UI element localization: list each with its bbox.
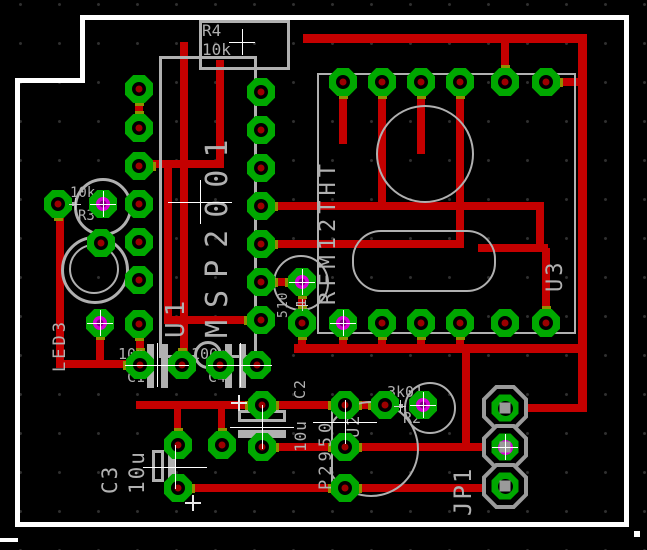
thru-hole-pad[interactable] <box>247 268 275 296</box>
silk-label: U3 <box>545 260 567 293</box>
thru-hole-pad[interactable] <box>247 306 275 334</box>
pad-drill <box>219 442 226 449</box>
pad-hole <box>539 75 553 89</box>
header-pad-ring <box>492 473 519 500</box>
pad-hole <box>336 75 350 89</box>
copper-trace[interactable] <box>578 34 587 412</box>
silk-label: C3 <box>100 465 121 494</box>
thru-hole-pad[interactable] <box>125 114 153 142</box>
pad-drill <box>136 125 143 132</box>
header-pad-hole <box>498 479 513 494</box>
board-outline-segment[interactable] <box>15 78 85 83</box>
thru-hole-pad[interactable] <box>491 68 519 96</box>
crosshair-v <box>302 269 303 295</box>
thru-hole-pad[interactable] <box>247 78 275 106</box>
thru-hole-pad[interactable] <box>164 474 192 502</box>
capacitor-plate <box>161 344 168 388</box>
copper-trace[interactable] <box>303 34 583 43</box>
pad-drill <box>418 320 425 327</box>
thru-hole-pad[interactable] <box>247 116 275 144</box>
copper-trace[interactable] <box>294 344 586 353</box>
crosshair-v <box>157 343 158 387</box>
silkscreen-stadium[interactable] <box>352 230 496 292</box>
pad-hole <box>375 316 389 330</box>
thru-hole-pad[interactable] <box>44 190 72 218</box>
pad-drill <box>379 320 386 327</box>
crosshair-v <box>400 400 401 412</box>
pad-hole <box>171 481 185 495</box>
pad-drill <box>55 201 62 208</box>
thru-hole-pad[interactable] <box>125 266 153 294</box>
pad-drill <box>258 203 265 210</box>
pad-drill <box>258 241 265 248</box>
pad-hole <box>94 236 108 250</box>
pad-drill <box>543 79 550 86</box>
pad-hole <box>453 316 467 330</box>
silk-label: LED3 <box>52 319 69 372</box>
pcb-canvas[interactable]: R410k10kR310nC1100nC43k01R2U1MSP2001RFM1… <box>0 0 647 550</box>
header-pad-ring <box>492 395 519 422</box>
plus-v <box>192 495 194 511</box>
thru-hole-pad[interactable] <box>247 154 275 182</box>
crosshair-v <box>345 400 346 444</box>
crosshair-v <box>505 434 506 460</box>
pad-drill <box>382 402 389 409</box>
silk-label: RFM12THT <box>318 159 340 305</box>
board-outline-segment[interactable] <box>624 15 629 527</box>
thru-hole-pad[interactable] <box>125 228 153 256</box>
board-outline-segment[interactable] <box>15 522 629 527</box>
thru-hole-pad[interactable] <box>532 68 560 96</box>
header-pad-pin <box>500 403 511 414</box>
crosshair-v <box>100 310 101 336</box>
header-pad[interactable] <box>482 463 528 509</box>
thru-hole-pad[interactable] <box>125 310 153 338</box>
silk-label: C2 <box>293 379 308 399</box>
crosshair-v <box>103 191 104 217</box>
pad-drill <box>136 239 143 246</box>
capacitor-plate-hollow <box>152 450 164 482</box>
pad-drill <box>340 79 347 86</box>
silk-label: 10u <box>127 450 148 494</box>
pad-hole <box>132 197 146 211</box>
pad-drill <box>543 320 550 327</box>
thru-hole-pad[interactable] <box>331 474 359 502</box>
silk-label: JP1 <box>451 467 475 516</box>
pad-drill <box>342 444 349 451</box>
board-outline-segment[interactable] <box>80 15 85 83</box>
silk-label: U1 <box>163 295 189 338</box>
pad-drill <box>136 277 143 284</box>
pad-hole <box>453 75 467 89</box>
pad-drill <box>502 79 509 86</box>
silk-label: MSP2001 <box>203 128 233 338</box>
pad-hole <box>132 82 146 96</box>
silk-label: 10k <box>202 42 231 58</box>
pad-drill <box>98 240 105 247</box>
thru-hole-pad[interactable] <box>125 190 153 218</box>
crosshair-v <box>75 198 76 210</box>
crosshair-v <box>240 343 241 387</box>
thru-hole-pad[interactable] <box>288 309 316 337</box>
pad-drill <box>136 86 143 93</box>
pad-hole <box>254 199 268 213</box>
thru-hole-pad[interactable] <box>407 309 435 337</box>
pad-drill <box>299 320 306 327</box>
pad-hole <box>378 398 392 412</box>
board-outline-segment[interactable] <box>15 78 20 527</box>
pad-drill <box>418 79 425 86</box>
pad-hole <box>498 75 512 89</box>
header-pad-body <box>486 467 524 505</box>
pad-drill <box>136 163 143 170</box>
thru-hole-pad[interactable] <box>125 75 153 103</box>
pad-hole <box>132 235 146 249</box>
thru-hole-pad[interactable] <box>164 431 192 459</box>
pad-hole <box>414 75 428 89</box>
crosshair-v <box>343 310 344 336</box>
crosshair-v <box>423 392 424 418</box>
pad-drill <box>502 320 509 327</box>
pad-hole <box>254 237 268 251</box>
crosshair-v <box>302 299 303 311</box>
thru-hole-pad[interactable] <box>329 68 357 96</box>
pad-drill <box>457 79 464 86</box>
pad-hole <box>539 316 553 330</box>
pad-hole <box>132 317 146 331</box>
pad-drill <box>258 127 265 134</box>
plus-v <box>238 395 240 411</box>
crosshair-v <box>200 180 201 224</box>
thru-hole-pad[interactable] <box>407 68 435 96</box>
thru-hole-pad[interactable] <box>368 309 396 337</box>
pad-hole <box>338 481 352 495</box>
pad-hole <box>295 316 309 330</box>
silk-label: 510 <box>277 292 290 318</box>
silk-label: P2950 <box>318 419 335 490</box>
header-pad-body <box>486 389 524 427</box>
pad-hole <box>171 438 185 452</box>
header-pad-pin <box>500 481 511 492</box>
thru-hole-pad[interactable] <box>87 229 115 257</box>
pad-drill <box>342 485 349 492</box>
pad-hole <box>414 316 428 330</box>
thru-hole-pad[interactable] <box>247 192 275 220</box>
thru-hole-pad[interactable] <box>125 152 153 180</box>
thru-hole-pad[interactable] <box>247 230 275 258</box>
pad-hole <box>132 159 146 173</box>
pad-drill <box>258 279 265 286</box>
pad-hole <box>254 85 268 99</box>
silk-label: R4 <box>202 23 221 39</box>
board-outline-segment[interactable] <box>634 531 640 537</box>
thru-hole-pad[interactable] <box>532 309 560 337</box>
pad-drill <box>136 201 143 208</box>
thru-hole-pad[interactable] <box>446 309 474 337</box>
pad-drill <box>258 165 265 172</box>
header-pad-hole <box>498 401 513 416</box>
thru-hole-pad[interactable] <box>368 68 396 96</box>
board-outline-segment[interactable] <box>80 15 629 20</box>
pad-hole <box>215 438 229 452</box>
thru-hole-pad[interactable] <box>371 391 399 419</box>
pad-hole <box>375 75 389 89</box>
pad-drill <box>379 79 386 86</box>
crosshair-v <box>175 445 176 489</box>
pad-hole <box>254 161 268 175</box>
crosshair-v <box>262 405 263 449</box>
crosshair-v <box>242 29 243 55</box>
thru-hole-pad[interactable] <box>446 68 474 96</box>
pad-hole <box>498 316 512 330</box>
silk-label: 10u <box>293 420 309 452</box>
thru-hole-pad[interactable] <box>491 309 519 337</box>
pad-drill <box>258 89 265 96</box>
pad-hole <box>254 275 268 289</box>
pad-hole <box>254 313 268 327</box>
copper-trace[interactable] <box>462 348 470 451</box>
board-outline-segment[interactable] <box>0 538 18 542</box>
pad-drill <box>258 317 265 324</box>
pad-hole <box>254 123 268 137</box>
pad-drill <box>457 320 464 327</box>
pad-hole <box>51 197 65 211</box>
pad-hole <box>132 121 146 135</box>
silkscreen-circle[interactable] <box>376 105 474 203</box>
pad-hole <box>132 273 146 287</box>
thru-hole-pad[interactable] <box>208 431 236 459</box>
pad-drill <box>136 321 143 328</box>
